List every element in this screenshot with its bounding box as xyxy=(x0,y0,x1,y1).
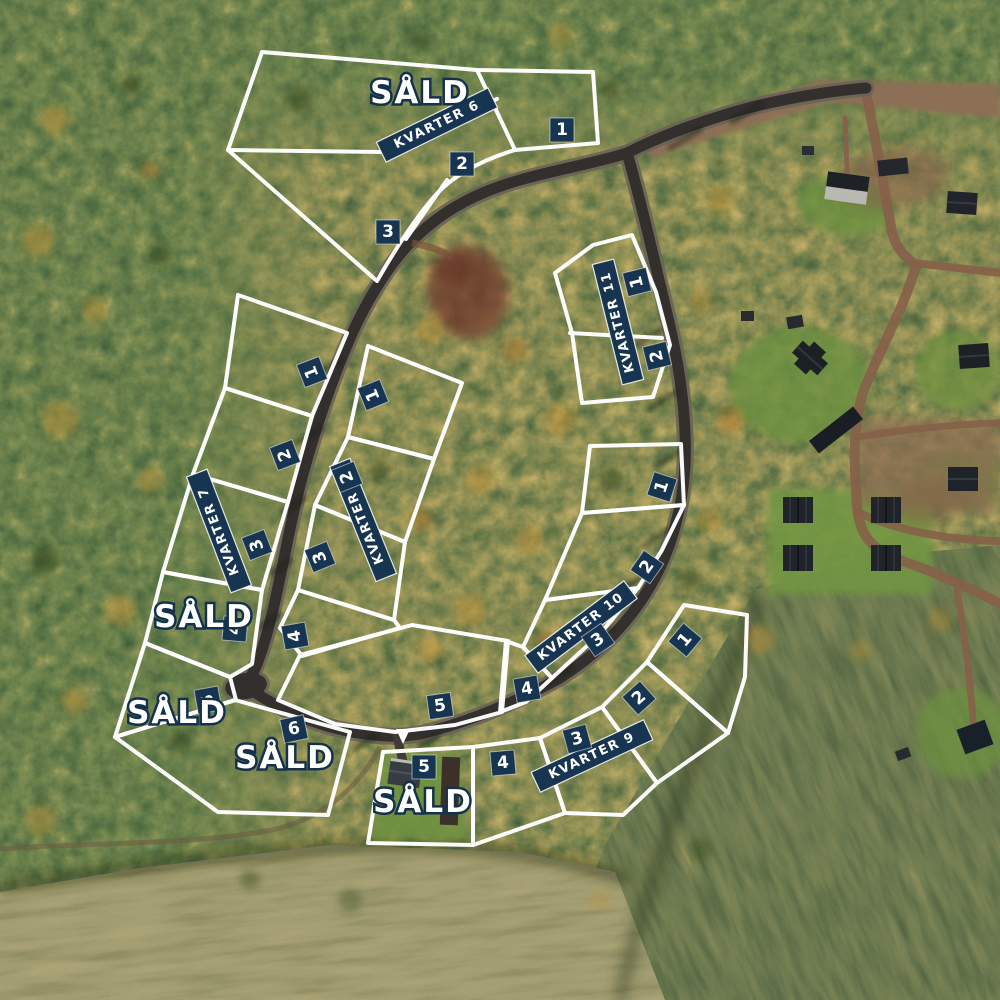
site-plan-aerial-map: KVARTER 6 KVARTER 7 KVARTER 8 KVARTER 9 … xyxy=(0,0,1000,1000)
photo-grain xyxy=(0,0,1000,1000)
plot-badge-kvarter-8-5[interactable]: 5 xyxy=(426,692,453,719)
plot-badge-kvarter-6-2[interactable]: 2 xyxy=(450,152,474,176)
plot-badge-kvarter-7-6[interactable]: 6 xyxy=(280,715,308,743)
plot-badge-kvarter-11-2[interactable]: 2 xyxy=(642,341,671,370)
plot-badge-kvarter-6-3[interactable]: 3 xyxy=(376,220,400,244)
site-plan-screenshot: KVARTER 6 KVARTER 7 KVARTER 8 KVARTER 9 … xyxy=(0,0,1000,1000)
sold-label-kvarter-7-plot-5: SÅLD xyxy=(127,694,227,731)
plot-badge-kvarter-10-4[interactable]: 4 xyxy=(513,675,541,703)
plot-number: 4 xyxy=(496,753,510,774)
sold-label-kvarter-7-plot-6: SÅLD xyxy=(235,739,335,776)
aerial-photo-background xyxy=(0,0,1000,1000)
plot-badge-kvarter-9-4[interactable]: 4 xyxy=(490,750,516,776)
sold-label-kvarter-6: SÅLD xyxy=(370,74,470,111)
plot-number: 1 xyxy=(556,120,568,140)
sold-label-kvarter-9-plot-5: SÅLD xyxy=(373,783,473,820)
plot-number: 5 xyxy=(418,757,430,777)
sold-label-kvarter-7-plot-4: SÅLD xyxy=(154,598,254,635)
plot-number: 3 xyxy=(382,222,394,242)
plot-badge-kvarter-6-1[interactable]: 1 xyxy=(550,118,574,142)
plot-badge-kvarter-8-4[interactable]: 4 xyxy=(281,622,309,650)
plot-badge-kvarter-9-5[interactable]: 5 xyxy=(412,755,436,779)
plot-number: 2 xyxy=(456,154,468,174)
plot-badge-kvarter-11-1[interactable]: 1 xyxy=(622,267,651,296)
